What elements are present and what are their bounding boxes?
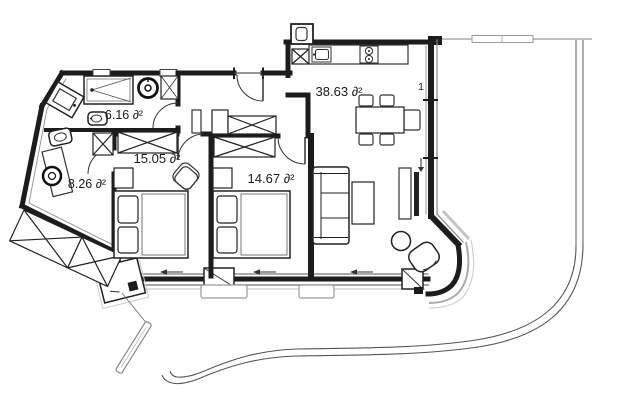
corridor-wardrobes: [212, 110, 276, 134]
wardrobe-bedroom1-icon: [118, 132, 177, 153]
basin-icon: [43, 167, 61, 185]
duct-shaft-icon: [161, 76, 178, 99]
window-tag-label: 1: [418, 81, 424, 93]
kitchen-sink-icon: [312, 47, 331, 62]
coffee-table-icon: [352, 182, 374, 224]
bedroom-2-furniture: [213, 137, 290, 258]
tv-stand-icon: [399, 168, 419, 219]
washing-machine-icon: [139, 79, 158, 98]
sofa-icon: [313, 167, 349, 244]
label-bedroom2-area: 14.67 ∂²: [248, 171, 296, 186]
label-bedroom1-area: 15.05 ∂²: [134, 151, 182, 166]
side-table-icon: [392, 232, 411, 251]
wardrobe-small-icon: [93, 133, 113, 155]
bathtub-icon: [84, 76, 133, 104]
living-furniture: [313, 167, 442, 275]
nightstand-2-icon: [213, 168, 232, 188]
floor-plan-drawing: 6.16 ∂² 8.26 ∂² 15.05 ∂² 14.67 ∂² 38.63 …: [0, 0, 642, 410]
dining-set: [356, 95, 420, 145]
bed-double-icon: [114, 191, 188, 258]
vent-shaft-box: [291, 24, 313, 44]
duct-box-icon: [292, 49, 309, 64]
label-hall-area: 8.26 ∂²: [68, 177, 106, 191]
corridor-wall-stub: [192, 110, 201, 133]
dining-table-icon: [356, 107, 404, 133]
bed-double-2-icon: [213, 191, 290, 258]
label-living-area: 38.63 ∂²: [316, 84, 364, 99]
nightstand-icon: [114, 168, 133, 188]
stove-icon: [360, 46, 378, 63]
floor-plan-page: 6.16 ∂² 8.26 ∂² 15.05 ∂² 14.67 ∂² 38.63 …: [0, 0, 642, 410]
wardrobe-bedroom2-icon: [214, 137, 275, 157]
window-arrow-down-icon: [418, 158, 424, 172]
kitchen-counter: [292, 45, 408, 64]
label-bathroom-area: 6.16 ∂²: [105, 108, 143, 122]
